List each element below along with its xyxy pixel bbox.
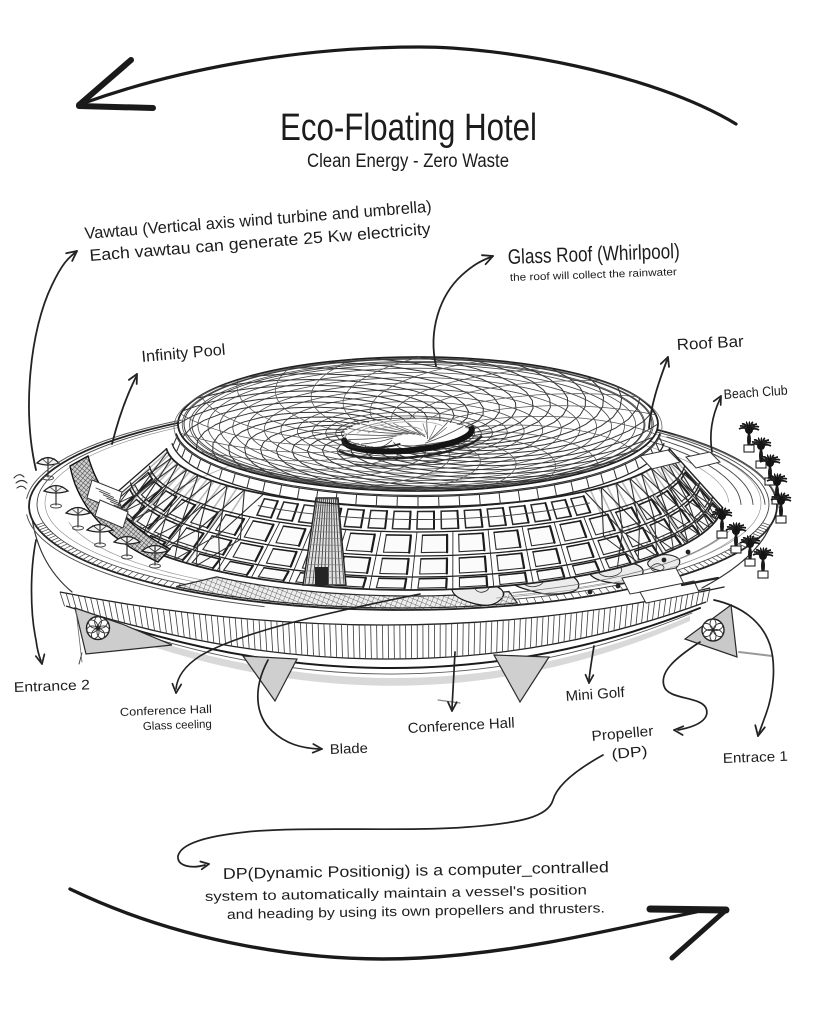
svg-text:Roof Bar: Roof Bar <box>676 333 745 354</box>
svg-text:Eco-Floating Hotel: Eco-Floating Hotel <box>280 107 537 149</box>
svg-text:Entrance 2: Entrance 2 <box>14 676 91 695</box>
svg-text:Glass ceeling: Glass ceeling <box>143 719 212 733</box>
svg-text:(DP): (DP) <box>611 744 648 763</box>
svg-text:Clean Energy - Zero Waste: Clean Energy - Zero Waste <box>307 151 509 172</box>
svg-text:Blade: Blade <box>330 740 369 757</box>
svg-text:Entrace 1: Entrace 1 <box>723 748 789 766</box>
